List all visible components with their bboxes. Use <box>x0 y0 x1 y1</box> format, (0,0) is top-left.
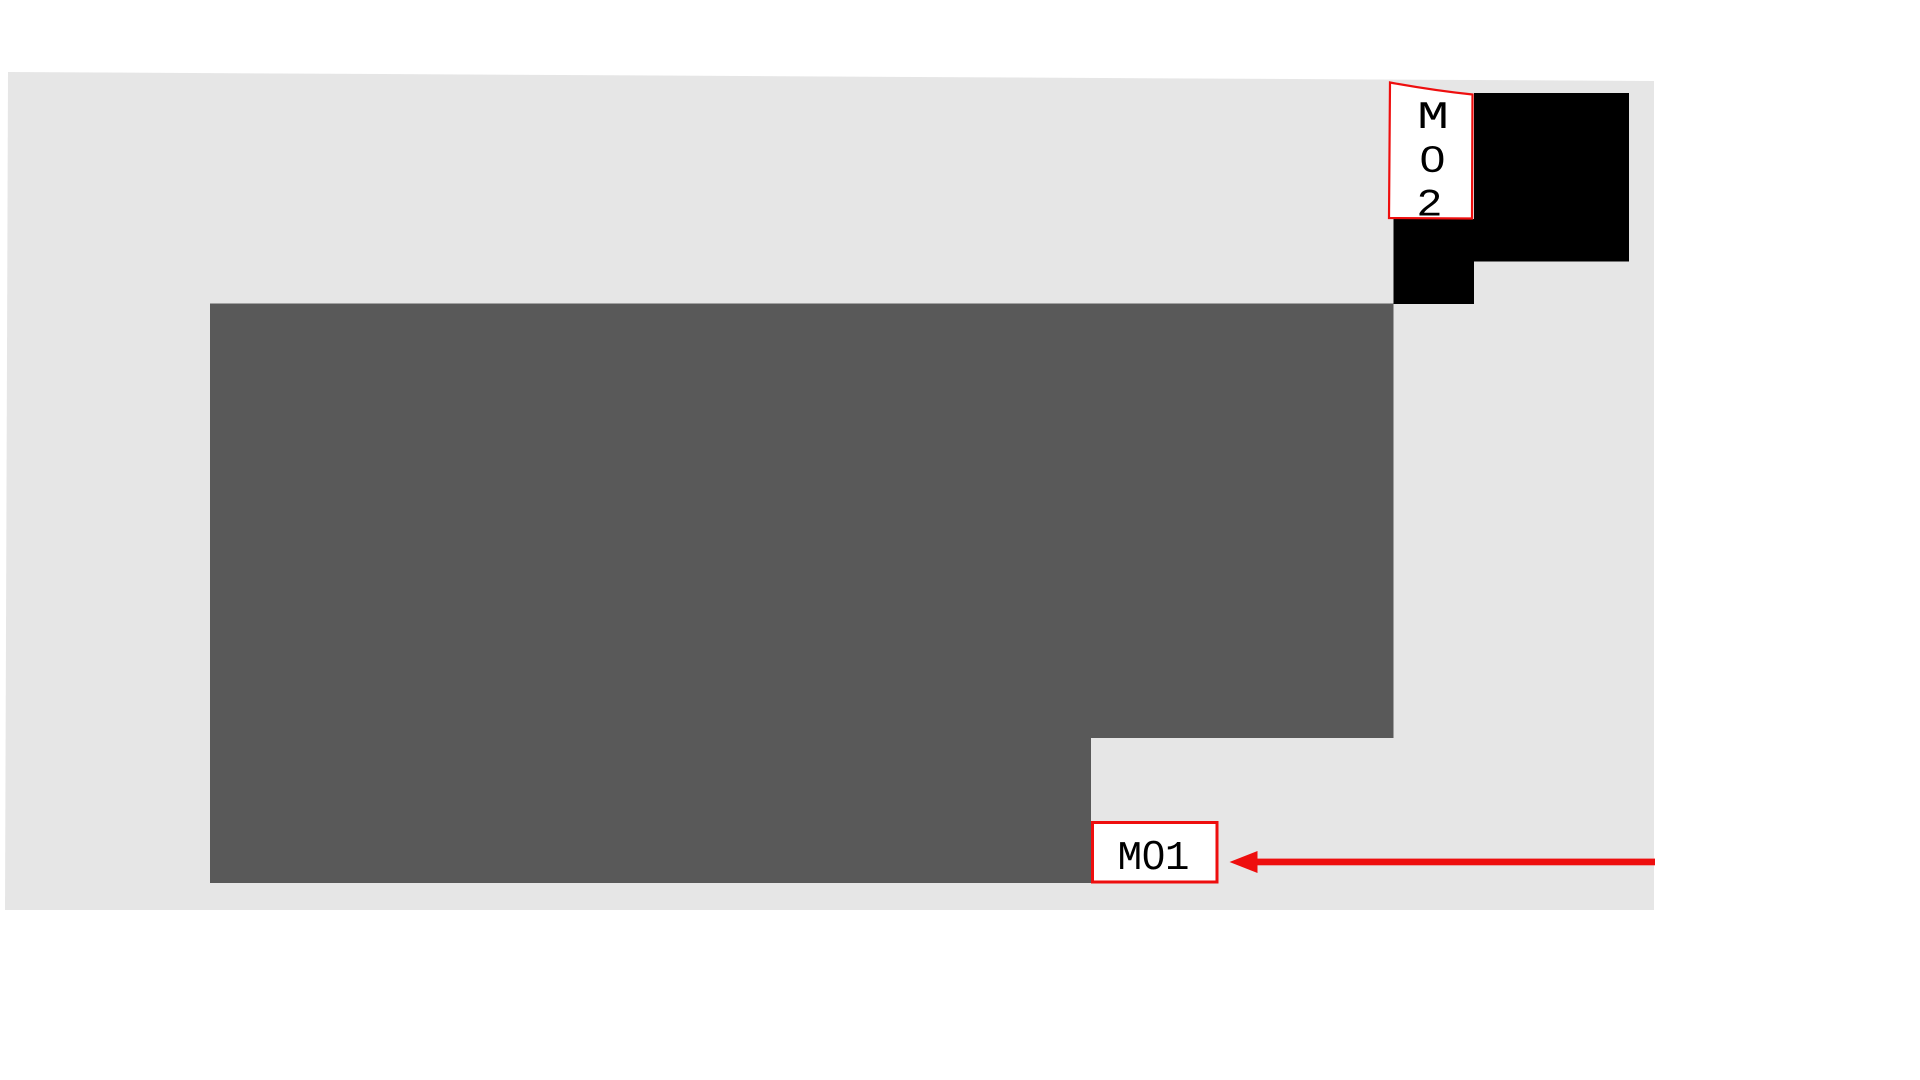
svg-text:M01: M01 <box>1117 832 1189 882</box>
svg-text:0: 0 <box>1420 138 1445 180</box>
svg-text:2: 2 <box>1416 184 1442 227</box>
svg-text:M: M <box>1417 95 1449 140</box>
